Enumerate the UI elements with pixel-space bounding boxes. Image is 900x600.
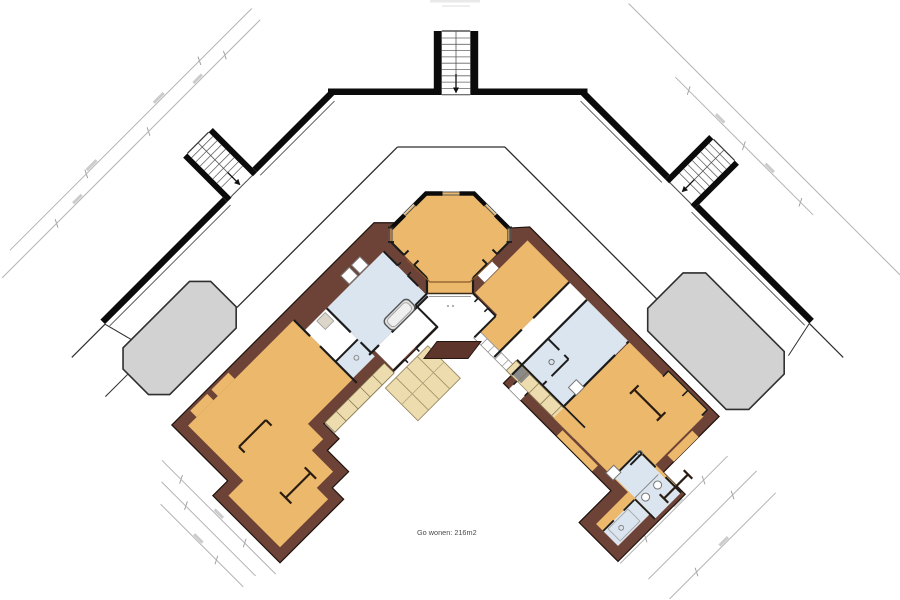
svg-text:Go wonen: 216m2: Go wonen: 216m2 [417, 528, 477, 537]
